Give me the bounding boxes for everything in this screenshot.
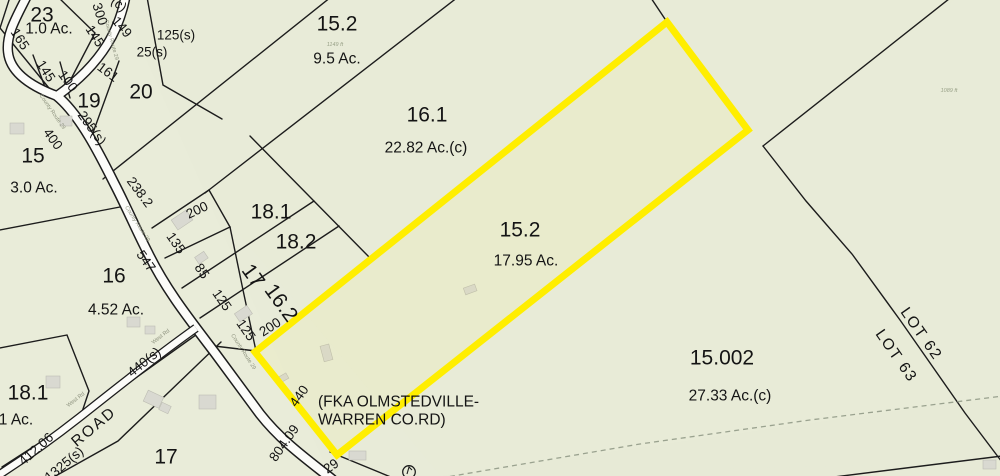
building-footprint <box>10 123 24 134</box>
parcel-id-label: 18.1 <box>8 382 49 405</box>
building-footprint <box>127 317 140 327</box>
parcel-acreage-label: 22.82 Ac.(c) <box>385 140 468 157</box>
elevation-label: 1089 ft <box>941 88 958 94</box>
parcel-acreage-label: 4.52 Ac. <box>88 302 144 319</box>
dimension-label: 25(s) <box>137 45 168 60</box>
parcel-id-label: 19 <box>77 90 100 113</box>
parcel-acreage-label: 1 Ac. <box>0 412 33 429</box>
parcel-id-label: 20 <box>129 81 152 104</box>
building-footprint <box>145 326 155 334</box>
parcel-id-label: 15.002 <box>690 347 754 370</box>
parcel-acreage-label: 9.5 Ac. <box>313 51 360 68</box>
parcel-id-label: 18.2 <box>276 231 317 254</box>
parcel-id-label: 17 <box>154 446 177 469</box>
parcel-id-label: 15.2 <box>500 219 541 242</box>
parcel-id-label: 15.2 <box>317 13 358 36</box>
fka-note-line1: (FKA OLMSTEDVILLE- <box>318 394 479 411</box>
parcel-id-label: 18.1 <box>251 201 292 224</box>
elevation-label: 1149 ft <box>327 42 344 48</box>
map-canvas[interactable]: 231920151618.118.215.216.115.215.00218.1… <box>0 0 1000 476</box>
parcel-id-label: 15 <box>21 145 44 168</box>
dimension-label: 125(s) <box>157 28 195 43</box>
fka-note-line2: WARREN CO.RD) <box>318 412 446 429</box>
parcel-acreage-label: 27.33 Ac.(c) <box>689 388 772 405</box>
building-footprint <box>349 451 366 460</box>
parcel-acreage-label: 3.0 Ac. <box>10 180 57 197</box>
building-footprint <box>199 395 216 409</box>
parcel-acreage-label: 1.0 Ac. <box>25 21 72 38</box>
building-footprint <box>983 460 996 469</box>
parcel-map-viewport[interactable]: 231920151618.118.215.216.115.215.00218.1… <box>0 0 1000 476</box>
parcel-id-label: 16.1 <box>407 104 448 127</box>
parcel-acreage-label: 17.95 Ac. <box>494 253 559 270</box>
parcel-id-label: 16 <box>102 265 125 288</box>
